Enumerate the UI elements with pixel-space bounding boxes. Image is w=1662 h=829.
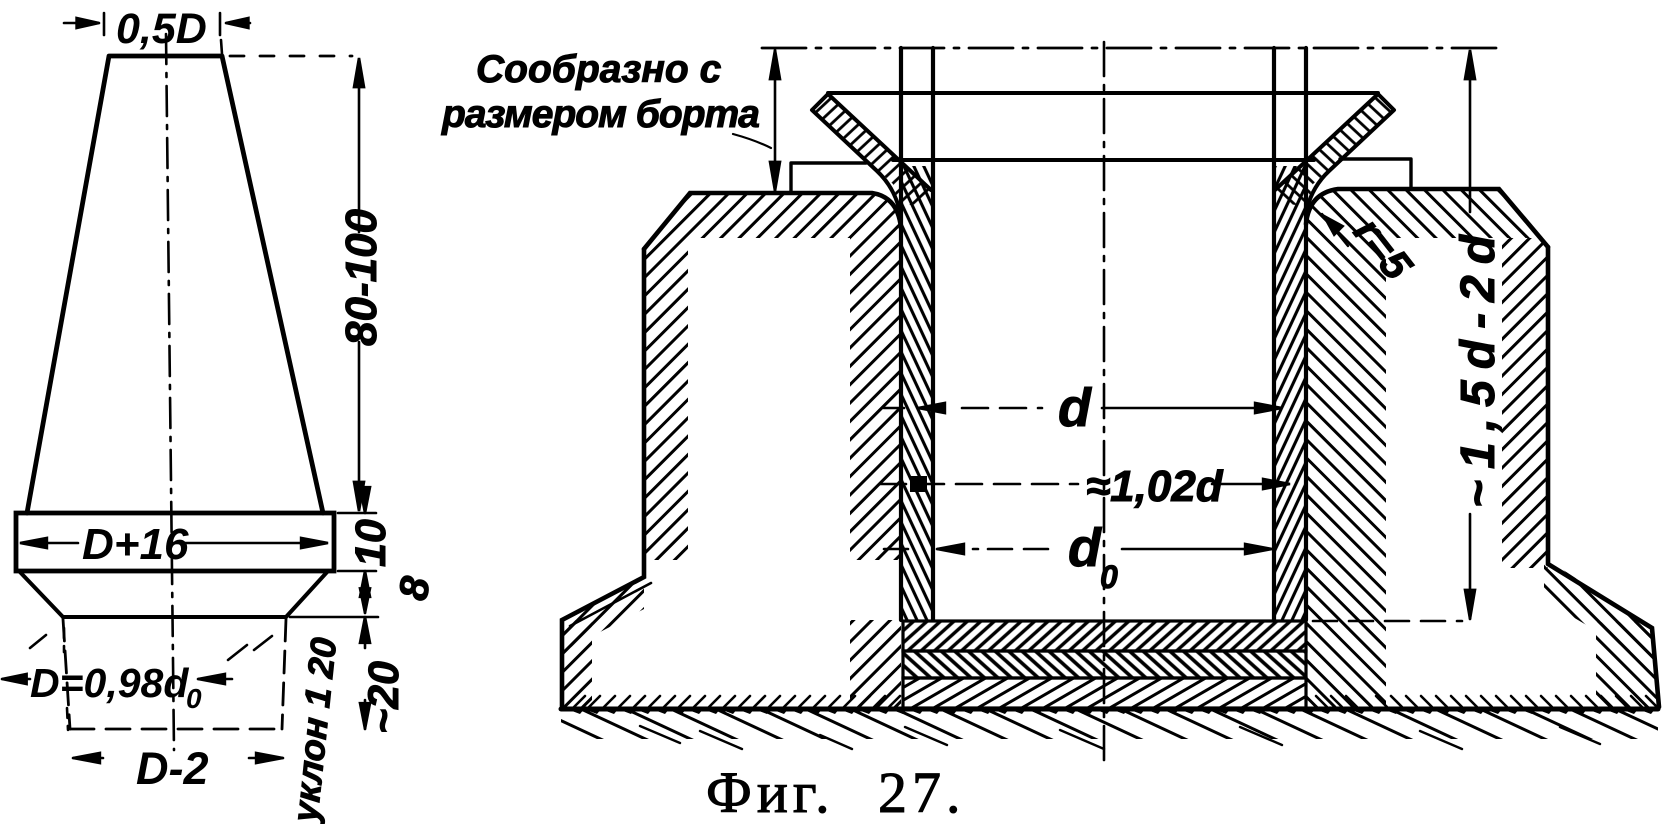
svg-text:D=0,98d: D=0,98d	[30, 660, 189, 706]
svg-text:Фиг.: Фиг.	[706, 760, 835, 824]
svg-text:0: 0	[186, 683, 202, 714]
svg-text:≈1,02d: ≈1,02d	[1086, 462, 1224, 511]
svg-text:d: d	[1068, 518, 1102, 578]
svg-text:d: d	[1058, 378, 1092, 438]
svg-text:D+16: D+16	[82, 520, 189, 569]
svg-text:27.: 27.	[878, 760, 966, 824]
svg-text:0: 0	[1100, 559, 1118, 595]
svg-text:~1,5d-2d: ~1,5d-2d	[1452, 224, 1505, 508]
svg-text:10: 10	[347, 519, 395, 567]
svg-text:0,5D: 0,5D	[116, 5, 207, 53]
svg-text:D-2: D-2	[136, 743, 209, 794]
svg-text:Сообразно с: Сообразно с	[476, 48, 722, 91]
svg-text:размером борта: размером борта	[441, 93, 759, 136]
svg-text:~20: ~20	[360, 661, 408, 734]
svg-text:80-100: 80-100	[337, 208, 386, 346]
